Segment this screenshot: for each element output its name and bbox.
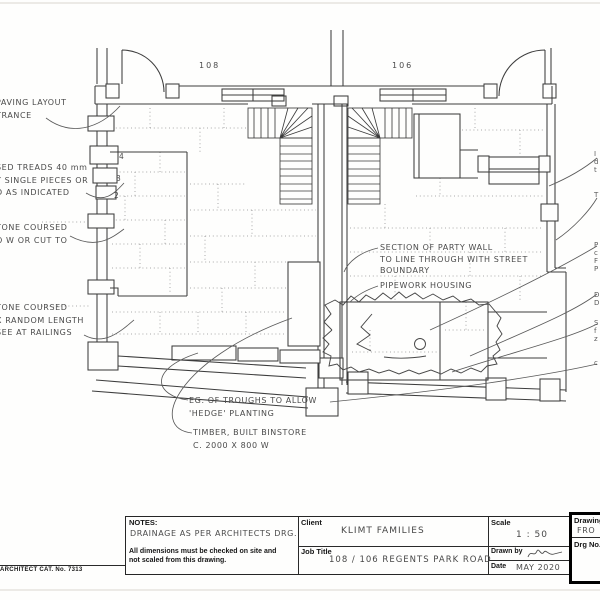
- annotation-line: X RANDOM LENGTH: [0, 315, 84, 328]
- annotation-line: PAVING LAYOUT: [0, 97, 67, 110]
- annotation-line: SED TREADS 40 mm: [0, 162, 88, 175]
- drawing-sheet: 108 106 4 3 2 PAVING LAYOUT TRANCE SED T…: [0, 0, 600, 600]
- notes-printed-line: All dimensions must be checked on site a…: [129, 547, 276, 556]
- edge-fragment: D: [594, 299, 599, 307]
- scale-label: Scale: [491, 519, 511, 527]
- drawing-label: Drawing: [574, 516, 600, 525]
- annotation-line: O W OR CUT TO: [0, 235, 68, 248]
- edge-fragment: f: [594, 327, 596, 335]
- annotation-binstore: TIMBER, BUILT BINSTORE C. 2000 X 800 W: [193, 426, 307, 452]
- annotation-stone-coursed-lower: TONE COURSED X RANDOM LENGTH SEE AT RAIL…: [0, 302, 84, 340]
- annotation-treads: SED TREADS 40 mm Y SINGLE PIECES OR D AS…: [0, 162, 88, 200]
- drawing-box-divider: [572, 537, 600, 538]
- edge-fragment: F: [594, 257, 598, 265]
- annotation-line: BOUNDARY: [380, 265, 528, 277]
- annotation-line: D AS INDICATED: [0, 187, 88, 200]
- planting-bed: [323, 292, 502, 374]
- left-garden-walls: [88, 104, 320, 408]
- title-block: NOTES: DRAINAGE AS PER ARCHITECTS DRG. A…: [125, 516, 600, 575]
- job-title-label: Job Title: [301, 548, 332, 556]
- facade-walls: [95, 30, 556, 106]
- plan-linework: [0, 0, 600, 600]
- annotation-party-wall: SECTION OF PARTY WALL TO LINE THROUGH WI…: [380, 242, 528, 277]
- edge-fragment: t: [594, 166, 597, 174]
- edge-fragment: D: [594, 291, 599, 299]
- annotation-troughs: EG. OF TROUGHS TO ALLOW 'HEDGE' PLANTING: [189, 395, 317, 420]
- edge-fragment: c: [594, 359, 598, 367]
- annotation-line: TONE COURSED: [0, 222, 68, 235]
- annotation-pipework-housing: PIPEWORK HOUSING: [380, 280, 472, 293]
- edge-fragment: P: [594, 241, 598, 249]
- edge-fragment: T: [594, 191, 598, 199]
- edge-fragment: c: [594, 249, 598, 257]
- annotation-line: Y SINGLE PIECES OR: [0, 175, 88, 188]
- house-number-106: 106: [392, 61, 413, 70]
- step-number-2: 2: [114, 191, 119, 200]
- edge-fragment: z: [594, 335, 598, 343]
- notes-label: NOTES:: [129, 519, 157, 527]
- edge-fragment: S: [594, 319, 598, 327]
- drg-no-label: Drg No.: [574, 540, 600, 549]
- edge-fragment: I: [594, 150, 596, 158]
- client-label: Client: [301, 519, 322, 527]
- title-block-divider: [488, 560, 571, 561]
- drawing-value: FRO: [577, 525, 595, 538]
- annotation-line: TIMBER, BUILT BINSTORE: [193, 426, 307, 439]
- annotation-line: TONE COURSED: [0, 302, 84, 315]
- notes-handwritten: DRAINAGE AS PER ARCHITECTS DRG.: [130, 528, 297, 541]
- annotation-paving-layout: PAVING LAYOUT TRANCE: [0, 97, 67, 122]
- notes-printed: All dimensions must be checked on site a…: [129, 547, 276, 565]
- edge-fragment: d: [594, 158, 598, 166]
- annotation-line: TRANCE: [0, 110, 67, 123]
- date-value: MAY 2020: [516, 562, 560, 575]
- drawing-number-box: Drawing FRO Drg No.: [569, 512, 600, 584]
- annotation-line: SECTION OF PARTY WALL: [380, 242, 528, 254]
- footer-catalog-text: - ARCHITECT CAT. No. 7313: [0, 567, 83, 573]
- annotation-line: TO LINE THROUGH WITH STREET: [380, 254, 528, 266]
- notes-printed-line: not scaled from this drawing.: [129, 556, 276, 565]
- step-number-4: 4: [119, 152, 124, 161]
- edge-fragment: P: [594, 265, 598, 273]
- client-value: KLIMT FAMILIES: [341, 526, 425, 536]
- date-label: Date: [491, 563, 506, 570]
- drawn-by-label: Drawn by: [491, 548, 523, 555]
- house-number-108: 108: [199, 61, 220, 70]
- annotation-line: EG. OF TROUGHS TO ALLOW: [189, 395, 317, 408]
- annotation-line: C. 2000 X 800 W: [193, 439, 307, 452]
- scale-value: 1 : 50: [516, 530, 548, 540]
- annotation-stone-coursed-upper: TONE COURSED O W OR CUT TO: [0, 222, 68, 247]
- annotation-line: 'HEDGE' PLANTING: [189, 408, 317, 421]
- drawn-by-signature: [526, 547, 564, 560]
- job-title-value: 108 / 106 REGENTS PARK ROAD: [329, 555, 492, 565]
- annotation-line: SEE AT RAILINGS: [0, 327, 84, 340]
- annotation-line: PIPEWORK HOUSING: [380, 280, 472, 293]
- step-number-3: 3: [116, 174, 121, 183]
- stairs: [248, 108, 412, 204]
- footer-rule: [0, 565, 125, 566]
